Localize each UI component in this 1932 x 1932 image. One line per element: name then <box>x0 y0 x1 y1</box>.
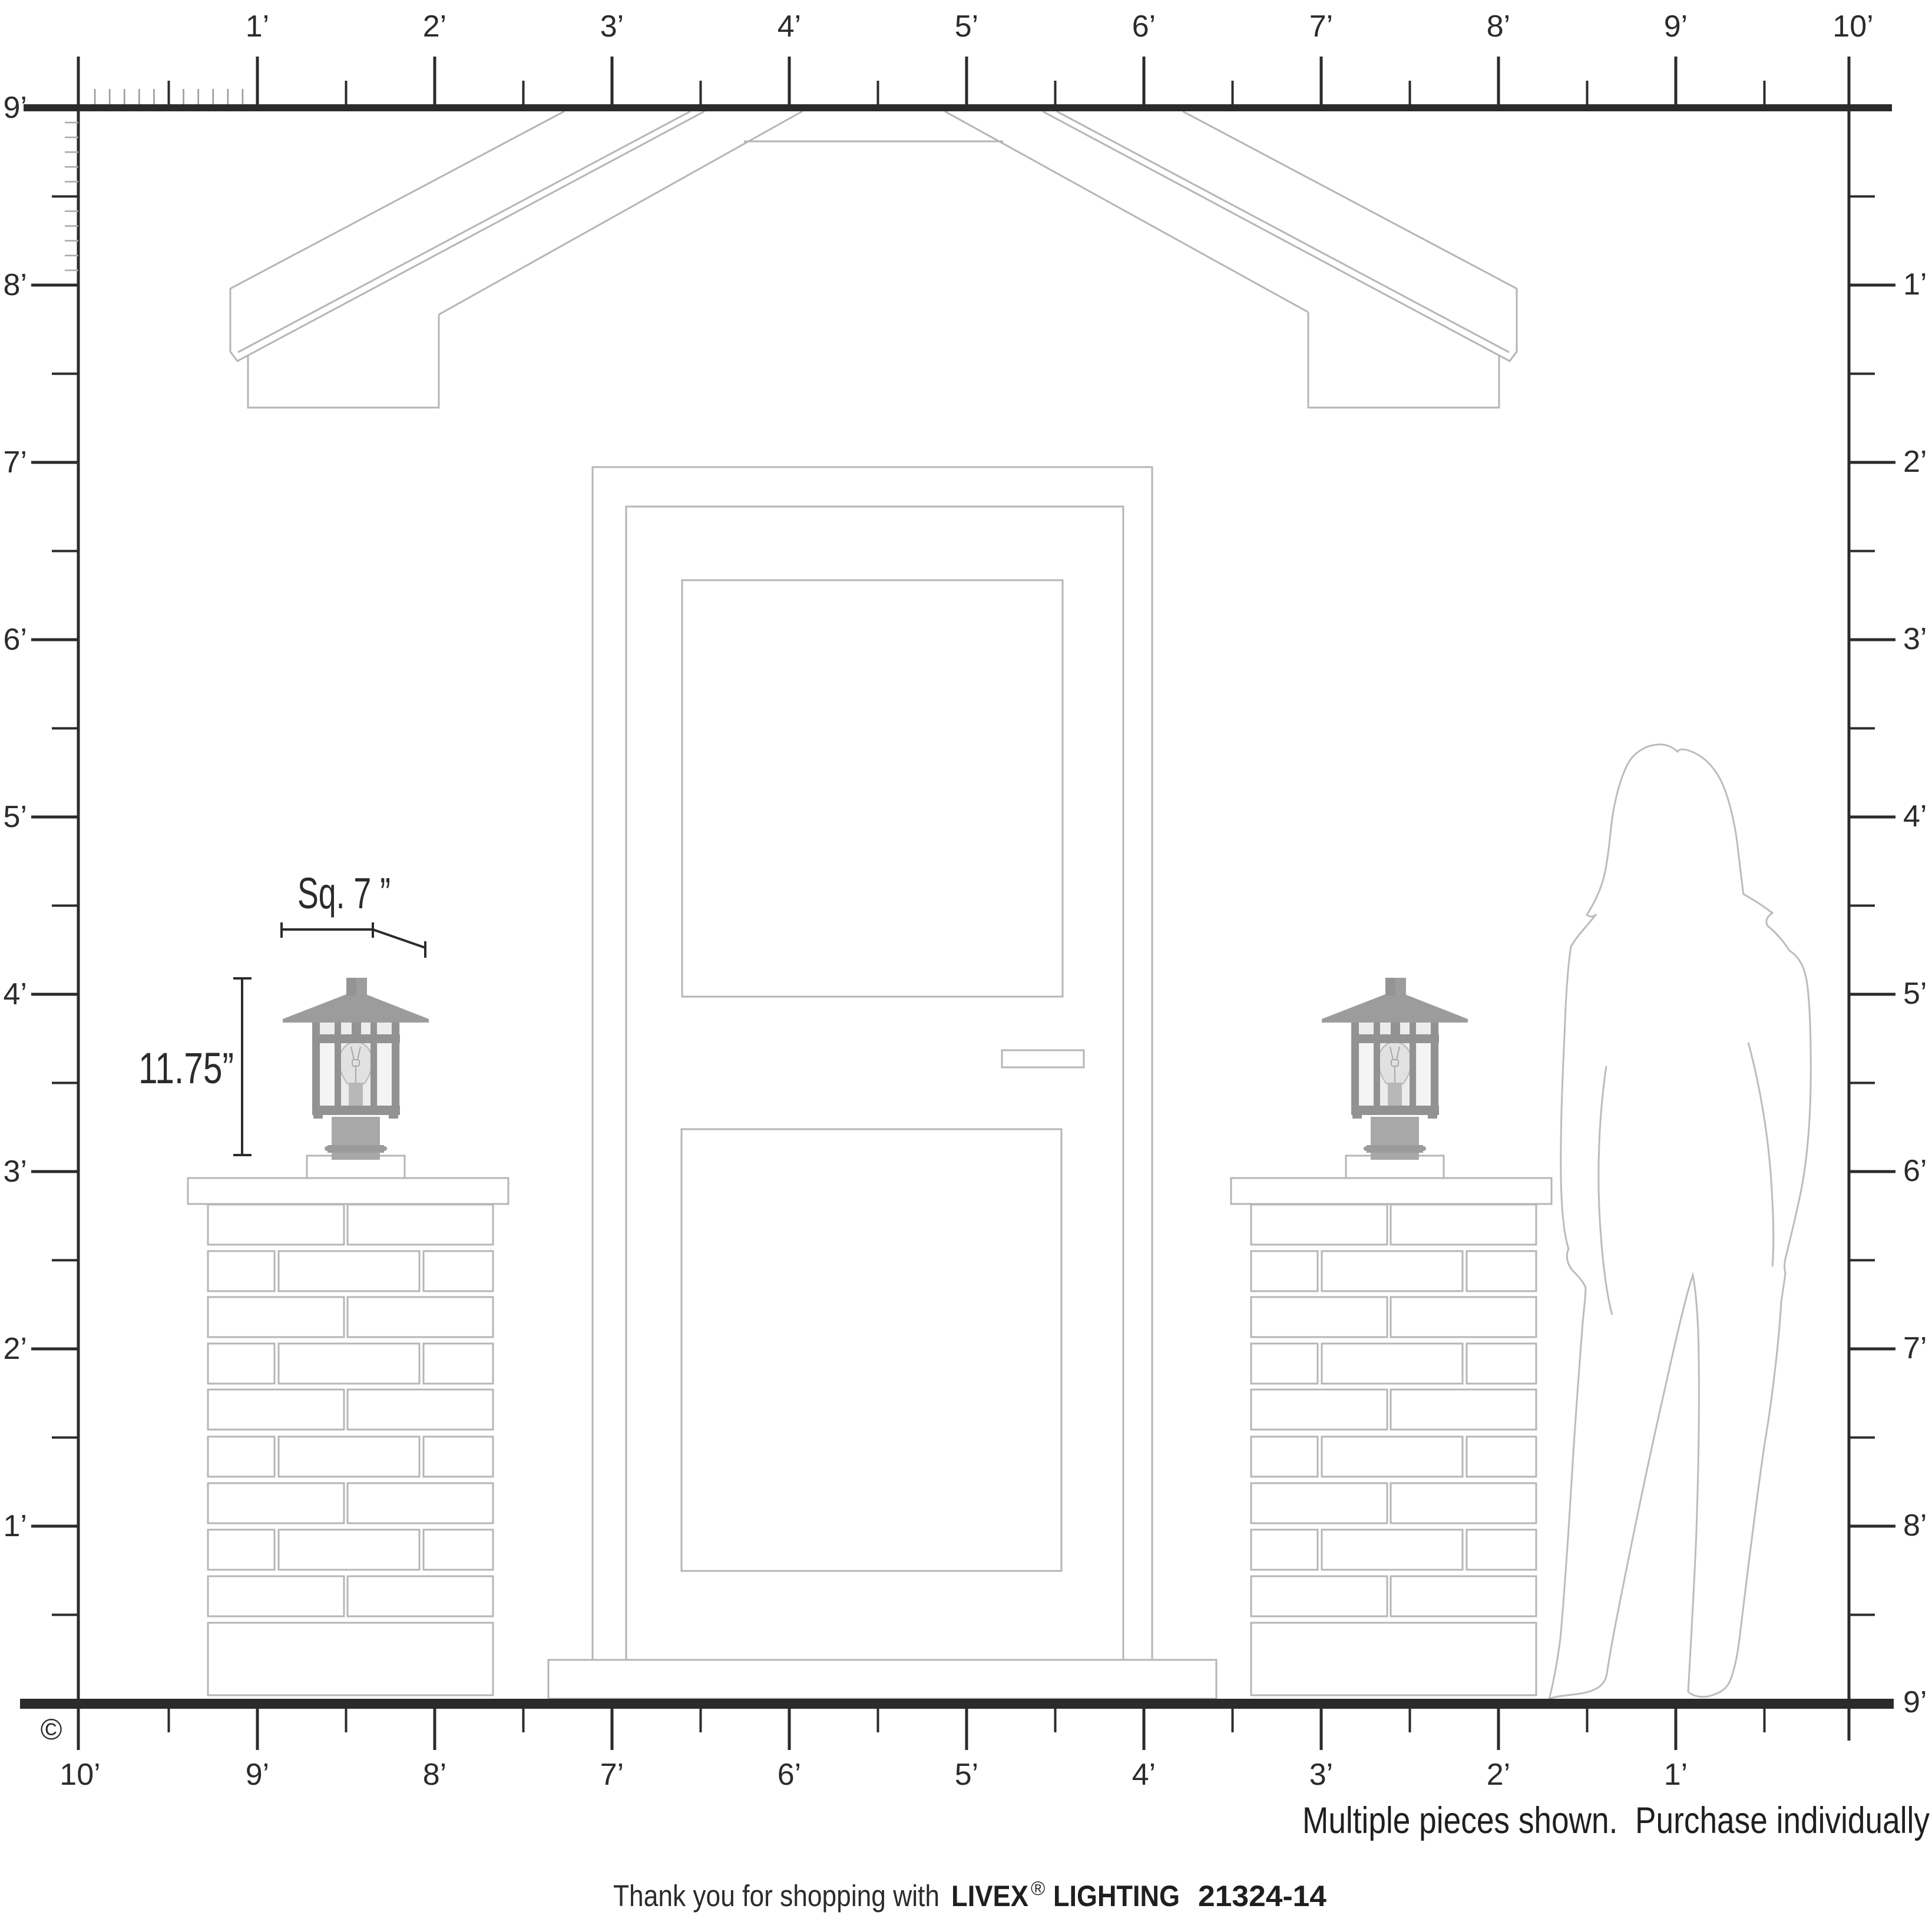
svg-text:2’: 2’ <box>423 9 446 44</box>
svg-text:LIGHTING: LIGHTING <box>1053 1880 1180 1913</box>
svg-text:3’: 3’ <box>4 1154 27 1189</box>
svg-text:4’: 4’ <box>778 9 801 44</box>
svg-text:4’: 4’ <box>1903 799 1927 833</box>
svg-text:2’: 2’ <box>4 1332 27 1366</box>
svg-text:7’: 7’ <box>600 1758 624 1792</box>
svg-text:®: ® <box>1031 1877 1045 1899</box>
svg-text:10’: 10’ <box>59 1758 100 1792</box>
svg-text:21324-14: 21324-14 <box>1198 1880 1326 1913</box>
svg-text:9’: 9’ <box>1903 1685 1927 1719</box>
svg-text:9’: 9’ <box>246 1758 269 1792</box>
svg-text:5’: 5’ <box>1903 977 1927 1011</box>
svg-text:7’: 7’ <box>4 445 27 479</box>
svg-text:5’: 5’ <box>4 800 27 834</box>
svg-text:LIVEX: LIVEX <box>951 1880 1028 1913</box>
svg-text:3’: 3’ <box>1309 1758 1333 1792</box>
svg-text:3’: 3’ <box>1903 622 1927 656</box>
svg-text:7’: 7’ <box>1903 1331 1927 1365</box>
svg-text:8’: 8’ <box>423 1758 446 1792</box>
svg-text:6’: 6’ <box>1903 1154 1927 1188</box>
svg-text:1’: 1’ <box>246 9 269 44</box>
svg-text:9’: 9’ <box>1664 9 1688 44</box>
svg-text:1’: 1’ <box>1903 267 1927 302</box>
svg-text:8’: 8’ <box>1903 1508 1927 1543</box>
svg-text:6’: 6’ <box>1132 9 1156 44</box>
svg-text:2’: 2’ <box>1903 445 1927 479</box>
svg-text:8’: 8’ <box>4 268 27 302</box>
svg-text:Sq. 7 ”: Sq. 7 ” <box>297 869 391 918</box>
svg-text:5’: 5’ <box>955 1758 978 1792</box>
svg-text:©: © <box>41 1713 62 1746</box>
svg-text:3’: 3’ <box>600 9 624 44</box>
svg-text:8’: 8’ <box>1487 9 1510 44</box>
svg-text:2’: 2’ <box>1487 1758 1510 1792</box>
svg-text:1’: 1’ <box>4 1509 27 1543</box>
svg-text:6’: 6’ <box>4 623 27 657</box>
svg-text:4’: 4’ <box>4 977 27 1011</box>
svg-text:6’: 6’ <box>778 1758 801 1792</box>
svg-text:11.75”: 11.75” <box>138 1044 234 1093</box>
svg-text:7’: 7’ <box>1309 9 1333 44</box>
svg-text:5’: 5’ <box>955 9 978 44</box>
svg-text:Multiple pieces shown. Purcha: Multiple pieces shown. Purchase individu… <box>1302 1800 1930 1841</box>
svg-text:Thank you for shopping with: Thank you for shopping with <box>613 1879 939 1913</box>
svg-text:4’: 4’ <box>1132 1758 1156 1792</box>
svg-text:1’: 1’ <box>1664 1758 1688 1792</box>
svg-text:9’: 9’ <box>4 91 27 125</box>
svg-text:10’: 10’ <box>1832 9 1873 44</box>
